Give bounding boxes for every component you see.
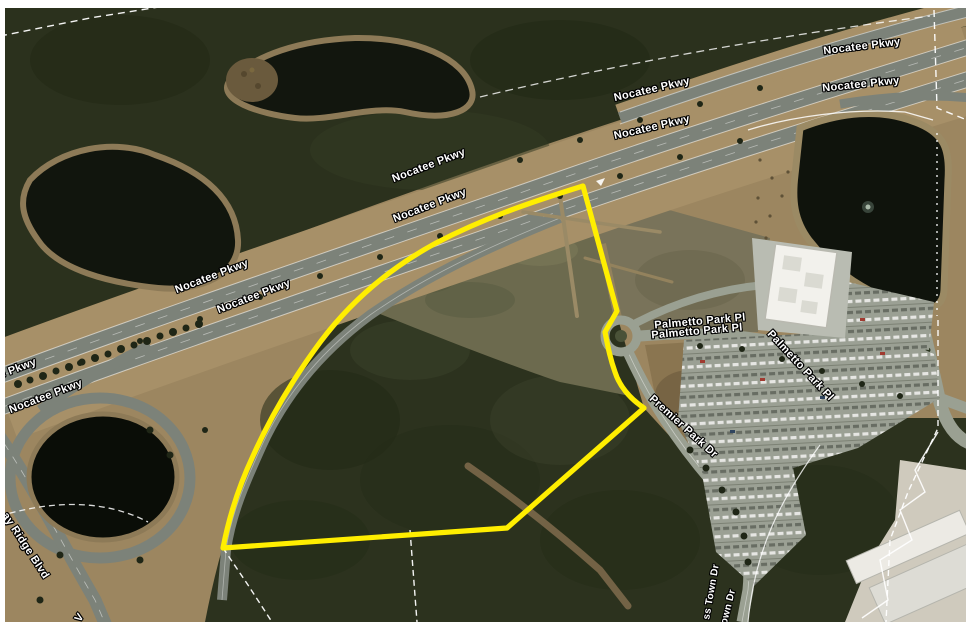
- pond-island: [226, 58, 278, 102]
- office-building: [752, 238, 852, 338]
- pond-loop: [29, 414, 177, 540]
- map-area: Nocatee Pkwy Nocatee Pkwy Nocatee Pkwy N…: [5, 8, 966, 622]
- map-graphics: [5, 8, 966, 622]
- aerial-map-image: Nocatee Pkwy Nocatee Pkwy Nocatee Pkwy N…: [0, 0, 972, 635]
- map-stage: Nocatee Pkwy Nocatee Pkwy Nocatee Pkwy N…: [5, 8, 966, 622]
